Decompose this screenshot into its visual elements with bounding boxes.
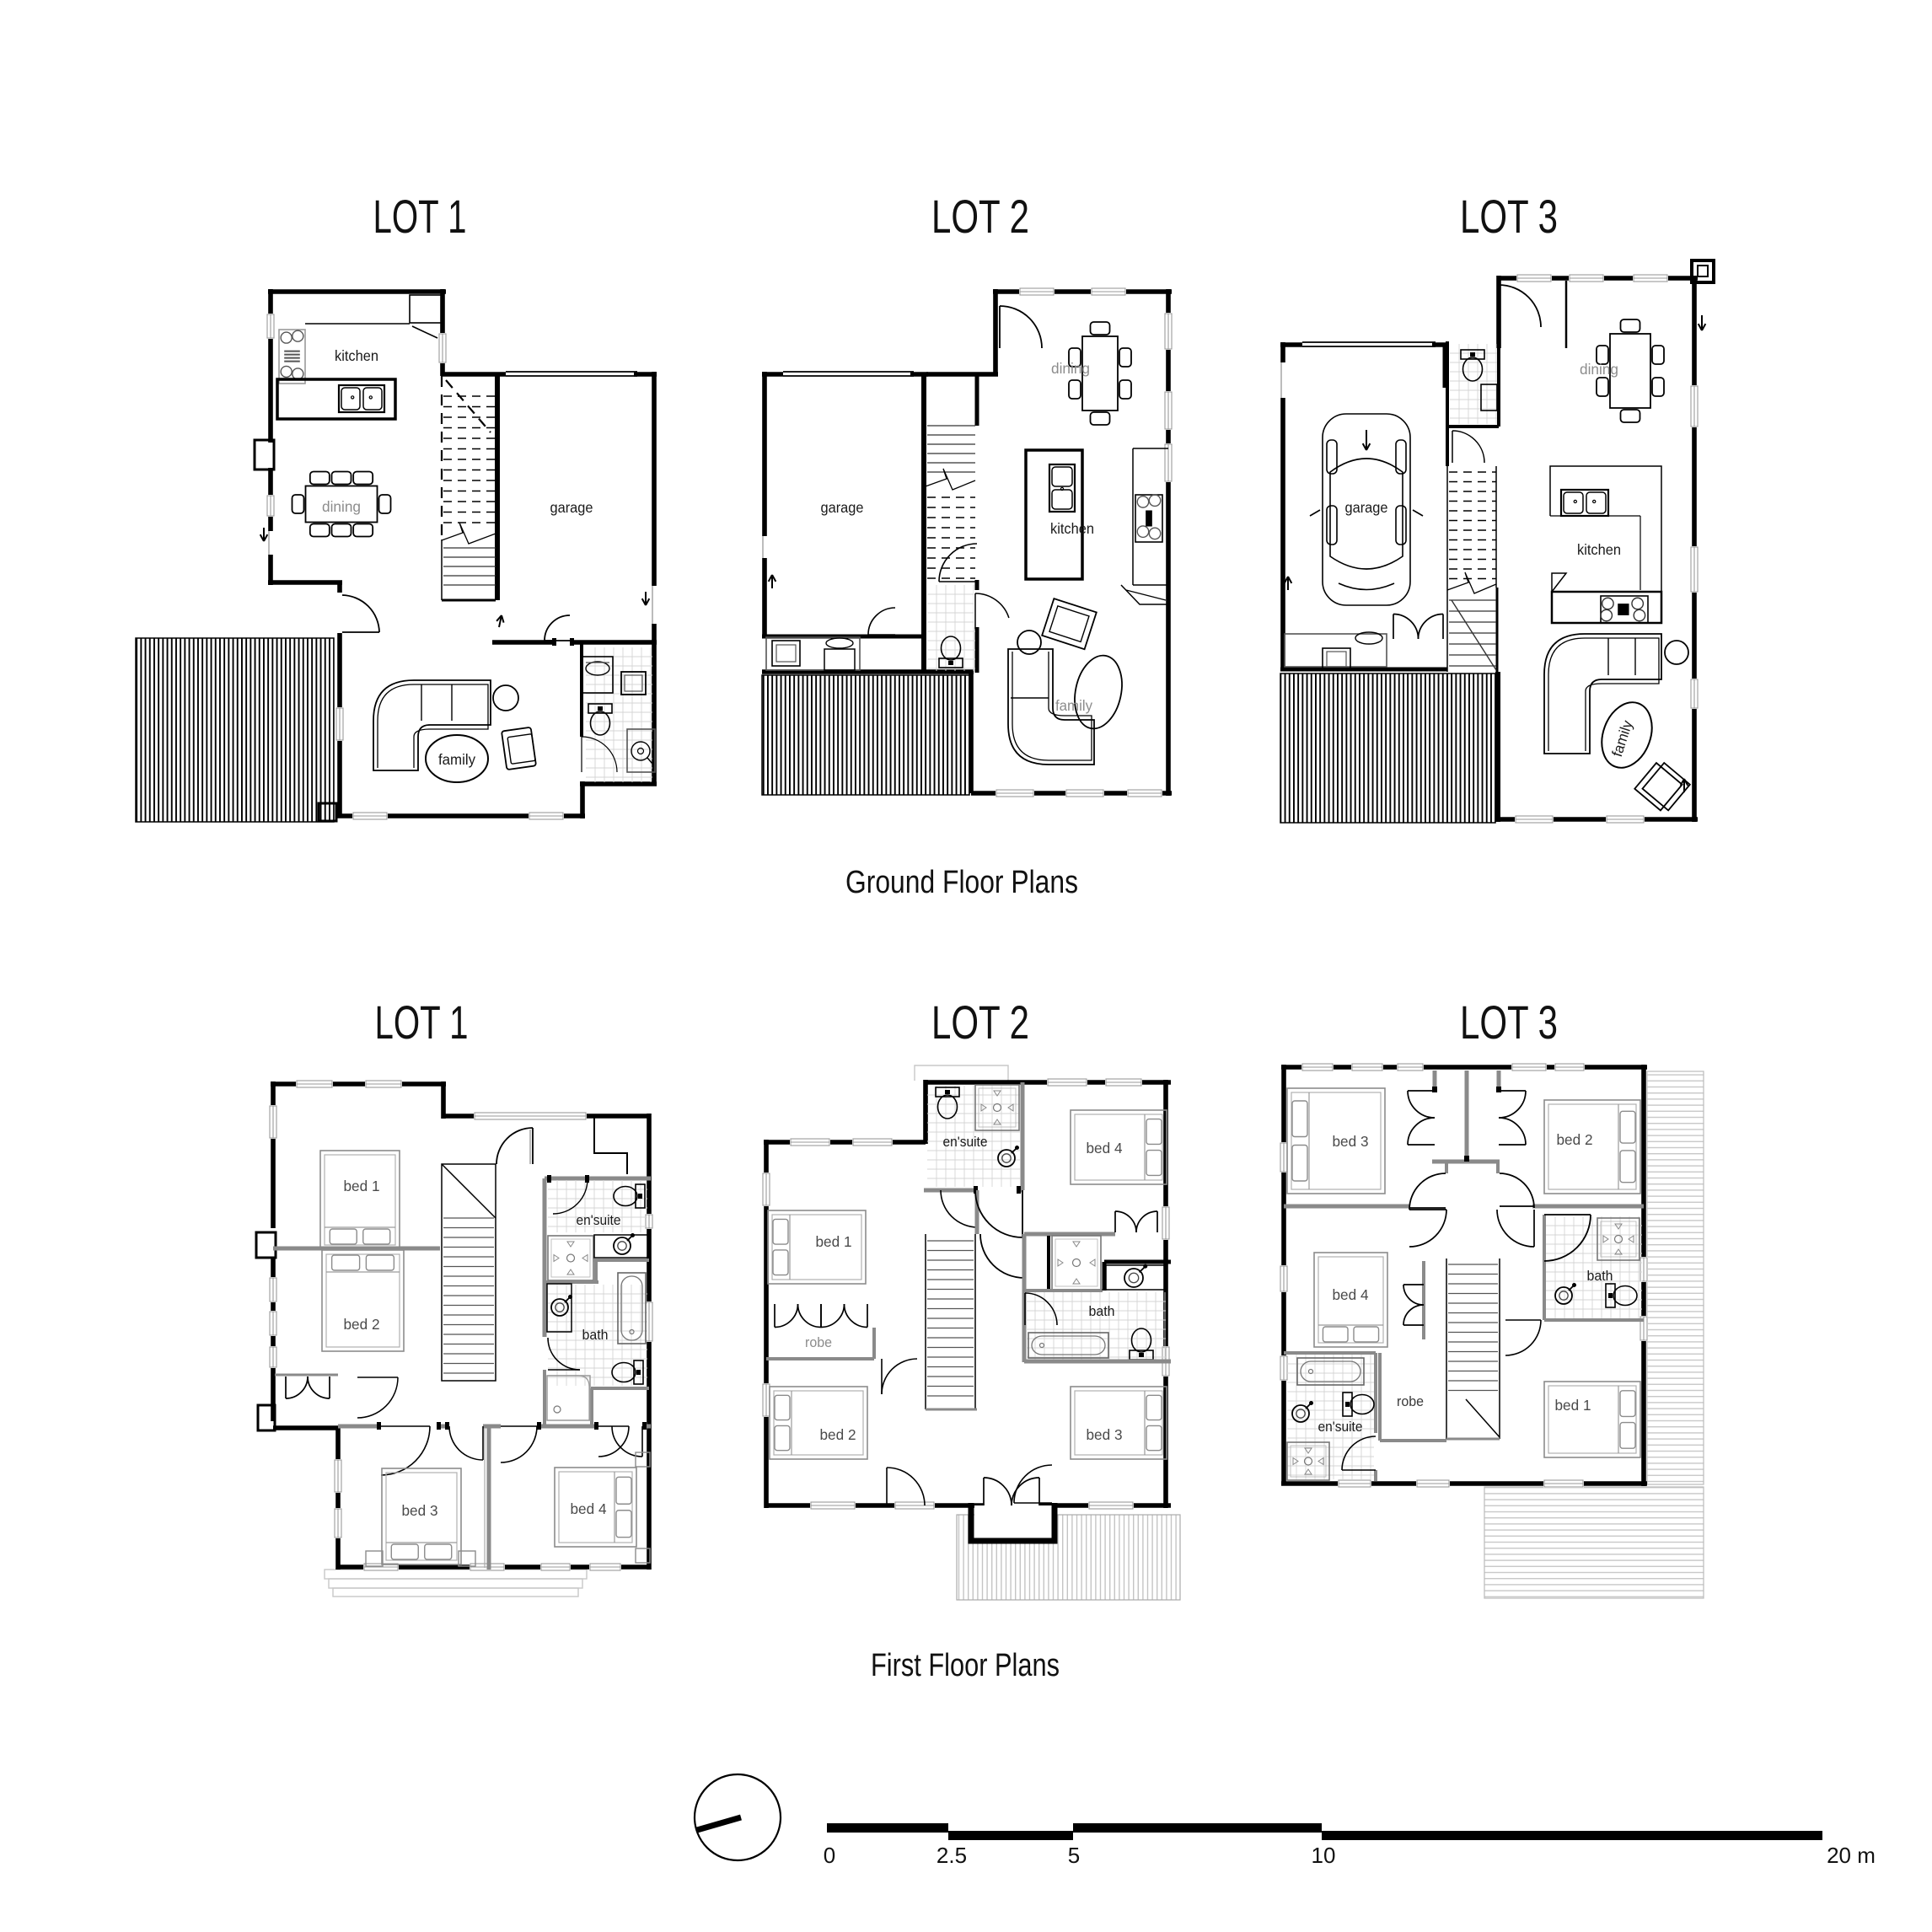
svg-text:dining: dining bbox=[1051, 360, 1090, 377]
svg-text:LOT 3: LOT 3 bbox=[1460, 190, 1558, 243]
svg-text:bed 1: bed 1 bbox=[1555, 1397, 1591, 1414]
svg-text:10: 10 bbox=[1312, 1843, 1336, 1868]
svg-text:garage: garage bbox=[550, 499, 593, 516]
svg-text:bed 4: bed 4 bbox=[1333, 1286, 1369, 1303]
svg-text:bath: bath bbox=[1089, 1303, 1115, 1319]
svg-text:bed 2: bed 2 bbox=[1557, 1131, 1593, 1148]
svg-text:5: 5 bbox=[1068, 1843, 1080, 1868]
svg-text:bed 2: bed 2 bbox=[344, 1316, 380, 1333]
svg-text:LOT 3: LOT 3 bbox=[1460, 996, 1558, 1049]
svg-text:garage: garage bbox=[1345, 499, 1388, 516]
svg-text:bed 4: bed 4 bbox=[1087, 1140, 1123, 1157]
svg-text:bath: bath bbox=[582, 1327, 609, 1343]
svg-text:en'suite: en'suite bbox=[1318, 1419, 1363, 1435]
svg-text:bed 3: bed 3 bbox=[1087, 1426, 1123, 1443]
svg-text:First Floor Plans: First Floor Plans bbox=[871, 1648, 1060, 1683]
svg-text:LOT 2: LOT 2 bbox=[931, 190, 1029, 243]
svg-text:0: 0 bbox=[824, 1843, 835, 1868]
svg-text:family: family bbox=[1055, 697, 1092, 714]
svg-text:robe: robe bbox=[805, 1334, 832, 1350]
svg-text:en'suite: en'suite bbox=[943, 1134, 988, 1150]
svg-text:dining: dining bbox=[322, 498, 361, 515]
svg-text:robe: robe bbox=[1397, 1393, 1424, 1409]
svg-text:dining: dining bbox=[1580, 361, 1618, 378]
svg-text:en'suite: en'suite bbox=[577, 1212, 621, 1228]
svg-text:bed 3: bed 3 bbox=[1333, 1133, 1369, 1150]
svg-text:LOT 1: LOT 1 bbox=[373, 190, 467, 243]
svg-text:bed 3: bed 3 bbox=[402, 1502, 438, 1519]
svg-text:kitchen: kitchen bbox=[1050, 520, 1094, 537]
svg-text:20 m: 20 m bbox=[1827, 1843, 1876, 1868]
svg-text:bed 1: bed 1 bbox=[344, 1178, 380, 1194]
svg-text:kitchen: kitchen bbox=[1577, 541, 1621, 558]
svg-text:kitchen: kitchen bbox=[335, 347, 378, 364]
svg-text:LOT 2: LOT 2 bbox=[931, 996, 1029, 1049]
svg-text:LOT 1: LOT 1 bbox=[375, 996, 469, 1049]
svg-text:bed 4: bed 4 bbox=[571, 1500, 607, 1517]
svg-text:2.5: 2.5 bbox=[936, 1843, 967, 1868]
svg-text:Ground Floor Plans: Ground Floor Plans bbox=[845, 865, 1078, 900]
svg-text:bed 1: bed 1 bbox=[816, 1233, 852, 1250]
svg-text:family: family bbox=[438, 751, 475, 768]
svg-text:bath: bath bbox=[1587, 1268, 1613, 1284]
svg-text:bed 2: bed 2 bbox=[820, 1426, 856, 1443]
svg-text:garage: garage bbox=[821, 499, 864, 516]
